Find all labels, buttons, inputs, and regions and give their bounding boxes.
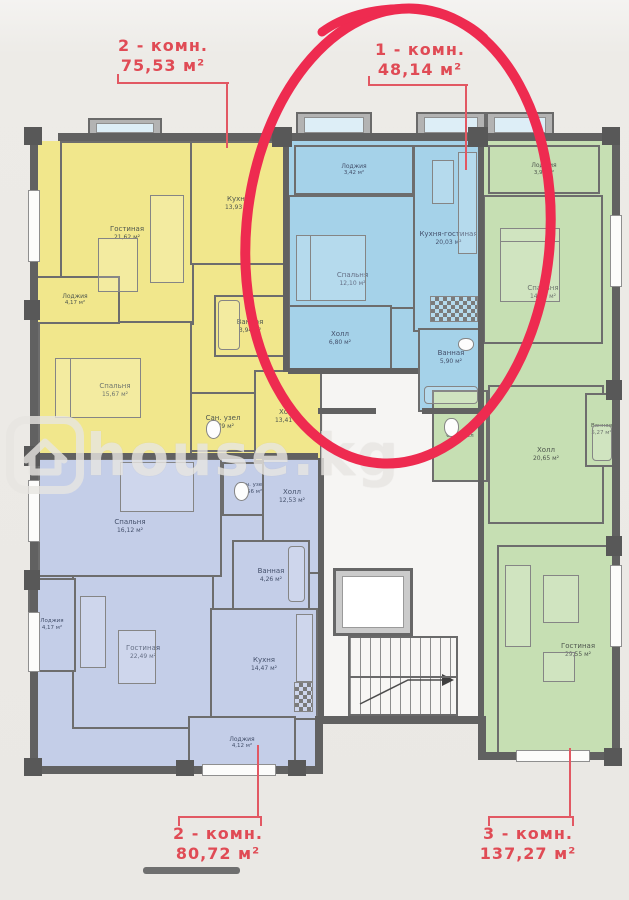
toilet-icon — [206, 420, 221, 439]
room-label: Ванная 3,94 м² — [237, 318, 264, 334]
wall — [58, 133, 608, 141]
table-icon — [118, 630, 156, 684]
wall-pilaster — [288, 760, 306, 776]
staircase — [348, 636, 458, 716]
wall-pilaster — [606, 380, 622, 400]
kitchen-counter-icon — [458, 152, 477, 254]
bed-icon — [500, 228, 560, 302]
room-green-loggia: Лоджия 3,99 м² — [488, 145, 600, 194]
bathtub-icon — [424, 386, 478, 404]
window — [610, 215, 622, 287]
unit-type: 2 - комн. — [143, 824, 293, 844]
window — [28, 480, 40, 542]
bathtub-icon — [218, 300, 240, 350]
room-label: Холл 6,80 м² — [329, 330, 351, 346]
window — [202, 764, 276, 776]
wall — [478, 141, 484, 411]
armchair-icon — [543, 652, 575, 682]
unit-label-bottom-left: 2 - комн. 80,72 м² — [143, 824, 293, 864]
shelving-icon — [150, 195, 184, 283]
sink-icon — [458, 338, 474, 351]
wall-pilaster — [24, 446, 40, 466]
room-label: Кухня 14,47 м² — [251, 656, 277, 672]
room-yellow-kitchen: Кухня 13,93 м² — [190, 141, 286, 265]
wall-pilaster — [272, 127, 292, 147]
sofa-icon — [80, 596, 106, 668]
wall — [478, 716, 486, 760]
room-label: Ванная 5,90 м² — [438, 349, 465, 365]
window-glass — [304, 117, 364, 133]
wall — [315, 716, 485, 724]
wall-pilaster — [176, 760, 194, 776]
wall-pilaster — [24, 300, 40, 320]
room-label: Холл 13,41 м² — [275, 408, 301, 424]
window — [28, 190, 40, 262]
floor-plan-photo: Гостиная 21,62 м² Кухня 13,93 м² Ванная … — [0, 0, 629, 900]
wall — [38, 453, 318, 459]
scale-bar — [143, 867, 240, 874]
room-yellow-wc: Сан. узел 2,79 м² — [190, 392, 256, 452]
wall-pilaster — [604, 748, 622, 766]
room-periwinkle-loggia-bottom: Лоджия 4,12 м² — [188, 716, 296, 770]
room-label: Лоджия 4,12 м² — [229, 736, 254, 750]
room-yellow-hall: Холл 13,41 м² — [254, 370, 322, 462]
room-label: Холл 12,53 м² — [279, 488, 305, 504]
bed-icon — [55, 358, 141, 418]
wall — [288, 368, 418, 374]
sofa-icon — [505, 565, 531, 647]
room-blue-hall: Холл 6,80 м² — [288, 305, 392, 372]
unit-area: 48,14 м² — [345, 60, 495, 80]
red-leader-line — [569, 748, 571, 818]
room-blue-loggia: Лоджия 3,42 м² — [294, 145, 414, 195]
stove-icon — [294, 682, 313, 712]
red-leader-line — [226, 82, 228, 148]
table-icon — [543, 575, 579, 623]
toilet-icon — [234, 482, 249, 501]
unit-type: 2 - комн. — [88, 36, 238, 56]
bathtub-icon — [288, 546, 305, 602]
room-label: Кухня 13,93 м² — [225, 195, 251, 211]
room-label: Холл 20,65 м² — [533, 446, 559, 462]
bathtub-icon — [592, 425, 612, 461]
sofa-icon — [98, 238, 138, 292]
unit-label-top-right: 1 - комн. 48,14 м² — [345, 40, 495, 80]
fridge-icon — [432, 160, 454, 204]
wall — [318, 408, 376, 414]
window — [610, 565, 622, 647]
room-label: Лоджия 3,42 м² — [341, 163, 366, 177]
unit-label-bottom-right: 3 - комн. 137,27 м² — [453, 824, 603, 864]
wall — [478, 411, 484, 716]
room-label: Лоджия 4,17 м² — [40, 618, 63, 632]
kitchen-counter-icon — [296, 614, 313, 682]
wall-pilaster — [602, 127, 620, 145]
room-label: Лоджия 4,17 м² — [62, 293, 87, 307]
unit-type: 1 - комн. — [345, 40, 495, 60]
unit-area: 75,53 м² — [88, 56, 238, 76]
bed-icon — [120, 462, 194, 512]
wall — [422, 408, 480, 414]
window — [28, 612, 40, 672]
room-label: Спальня 16,12 м² — [114, 518, 145, 534]
wall-pilaster — [24, 127, 42, 145]
unit-area: 137,27 м² — [453, 844, 603, 864]
red-leader-line — [257, 745, 259, 818]
unit-label-top-left: 2 - комн. 75,53 м² — [88, 36, 238, 76]
wall — [318, 458, 324, 716]
unit-area: 80,72 м² — [143, 844, 293, 864]
window-glass — [494, 117, 546, 133]
window-glass — [96, 123, 154, 133]
wall-pilaster — [24, 570, 40, 590]
red-leader-line — [465, 84, 467, 170]
wall-pilaster — [606, 536, 622, 556]
elevator-cab — [342, 576, 404, 628]
wall — [283, 141, 289, 372]
stove-icon — [430, 296, 478, 322]
room-label: Ванная 4,26 м² — [258, 567, 285, 583]
room-label: Лоджия 3,99 м² — [531, 162, 556, 176]
wall-pilaster — [24, 758, 42, 776]
elevator-shaft — [333, 568, 413, 636]
wall — [315, 716, 323, 774]
wall-pilaster — [468, 127, 488, 147]
wall — [30, 766, 320, 774]
stair-rail — [350, 676, 456, 678]
unit-type: 3 - комн. — [453, 824, 603, 844]
toilet-icon — [444, 418, 459, 437]
window — [516, 750, 590, 762]
bed-icon — [296, 235, 366, 301]
